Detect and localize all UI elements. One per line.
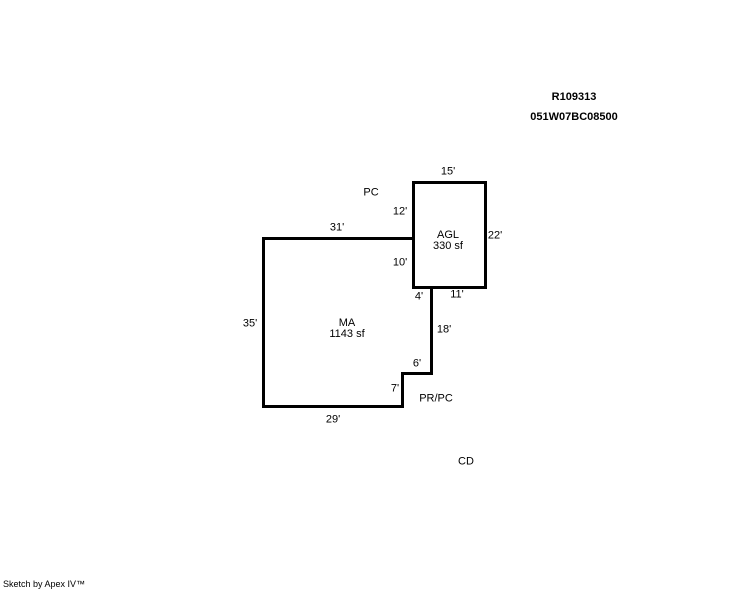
- dim-agl-top: 15': [441, 167, 455, 178]
- zone-label-pr-pc: PR/PC: [419, 394, 453, 405]
- dim-agl-left-upper: 12': [393, 207, 407, 218]
- sketch-credit: Sketch by Apex IV™: [3, 579, 85, 590]
- dim-notch-top: 6': [413, 359, 421, 370]
- sketch-canvas: R109313 051W07BC08500 15' 12' 10' 22' 11…: [0, 0, 744, 595]
- dim-notch-side: 7': [391, 384, 399, 395]
- zone-label-pc: PC: [363, 188, 378, 199]
- zone-label-cd: CD: [458, 457, 474, 468]
- ma-wall-top: [262, 237, 415, 240]
- dim-step-right: 4': [415, 292, 423, 303]
- dim-agl-bottom: 11': [450, 290, 464, 301]
- dim-ma-bottom: 29': [326, 415, 340, 426]
- ma-wall-bottom: [262, 405, 404, 408]
- agl-area-size: 330 sf: [433, 241, 463, 252]
- dim-agl-left-lower: 10': [393, 258, 407, 269]
- ma-wall-notch-side: [401, 372, 404, 408]
- ma-area-size: 1143 sf: [329, 329, 364, 340]
- dim-agl-right: 22': [488, 231, 502, 242]
- agl-area-label: AGL 330 sf: [433, 230, 463, 252]
- dim-ma-top: 31': [330, 223, 344, 234]
- dim-ma-left: 35': [243, 319, 257, 330]
- dim-step-down: 18': [437, 325, 451, 336]
- parcel-number-text: 051W07BC08500: [530, 111, 617, 123]
- ma-wall-right: [430, 286, 433, 375]
- ma-wall-left: [262, 237, 265, 408]
- ma-wall-notch-top: [401, 372, 433, 375]
- ma-area-label: MA 1143 sf: [329, 318, 364, 340]
- record-id-text: R109313: [552, 91, 597, 103]
